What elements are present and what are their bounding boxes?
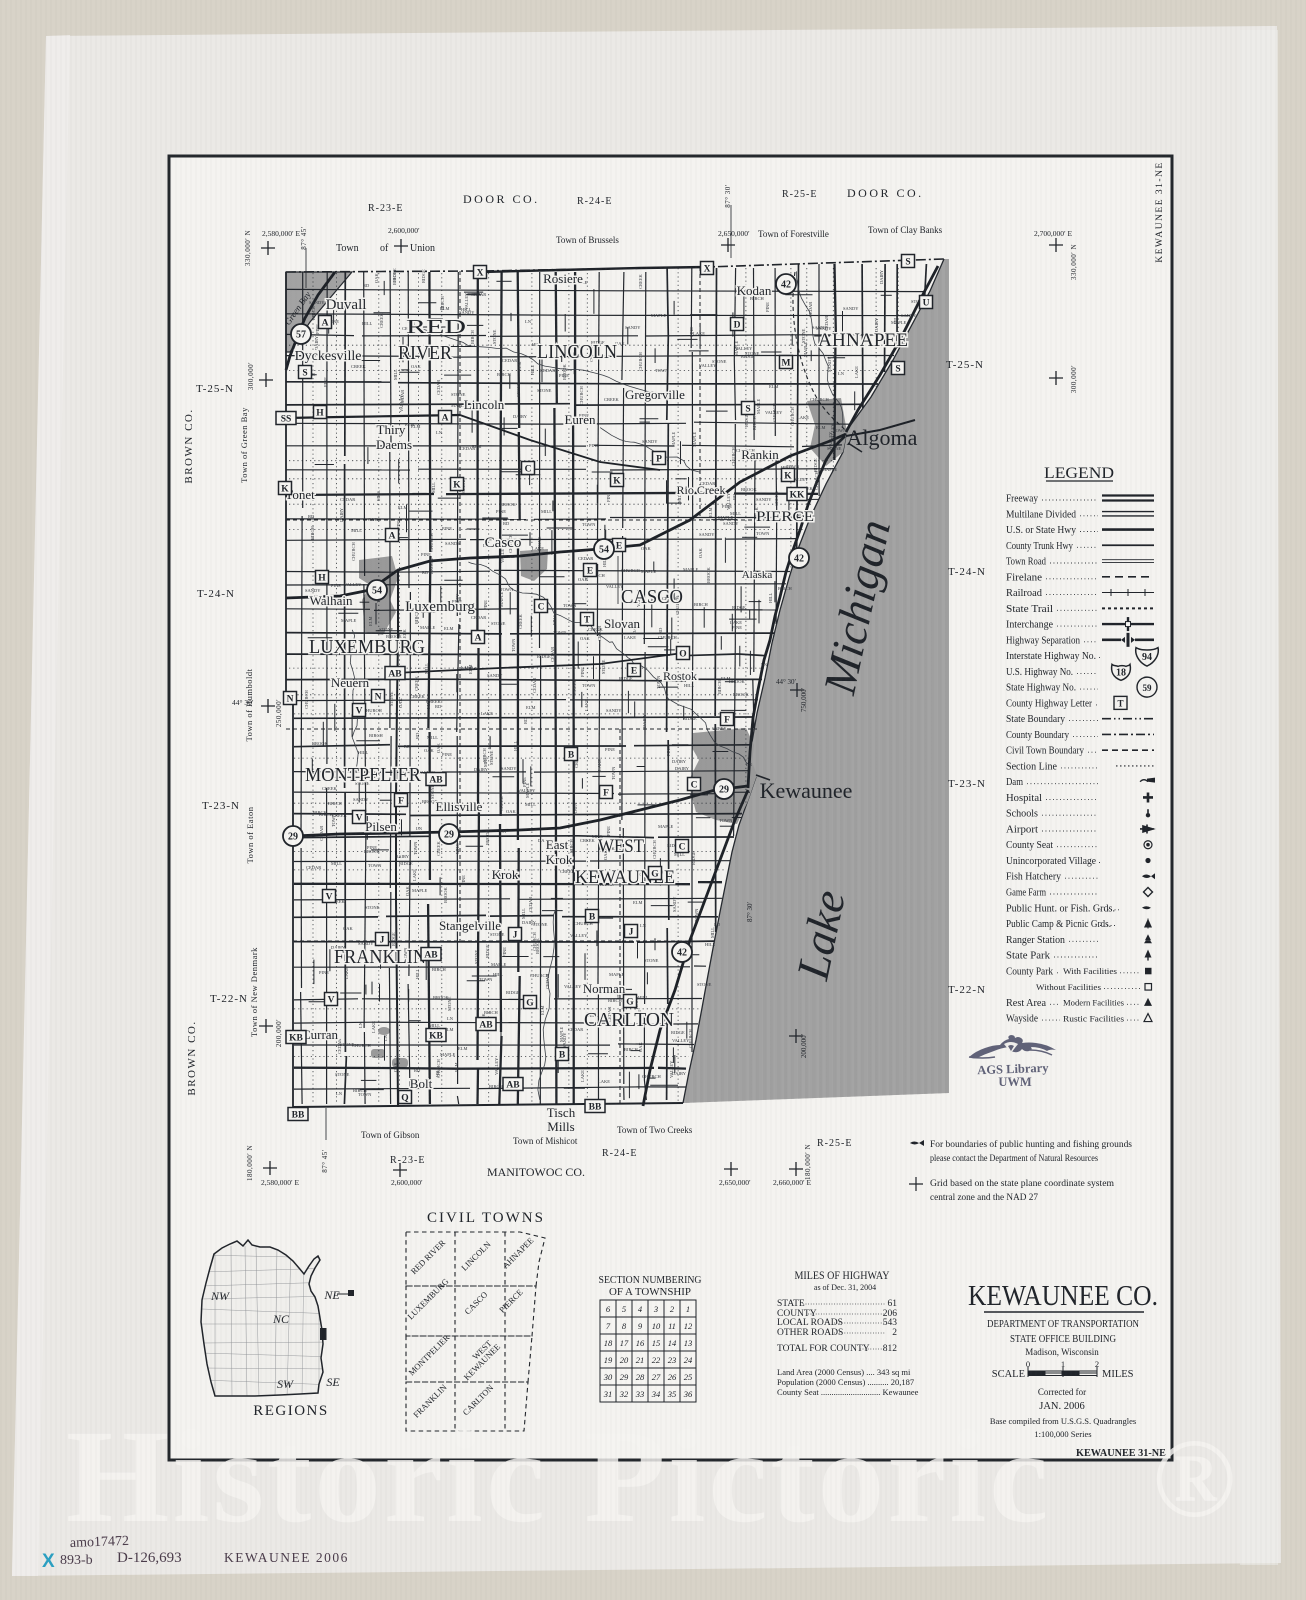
svg-text:DAIRY: DAIRY bbox=[675, 766, 690, 771]
svg-text:BROOK: BROOK bbox=[741, 487, 758, 492]
svg-text:11: 11 bbox=[668, 1321, 676, 1331]
svg-text:Section Line: Section Line bbox=[1006, 761, 1057, 772]
svg-text:VALLEY: VALLEY bbox=[765, 410, 783, 415]
svg-text:M: M bbox=[782, 358, 791, 368]
svg-text:CREEK: CREEK bbox=[518, 613, 523, 629]
svg-text:54: 54 bbox=[372, 586, 382, 597]
svg-text:Town Road: Town Road bbox=[1006, 557, 1047, 568]
svg-text:14: 14 bbox=[668, 1338, 677, 1348]
svg-text:County Boundary: County Boundary bbox=[1006, 730, 1070, 741]
svg-text:CHURCH: CHURCH bbox=[436, 1058, 441, 1078]
svg-text:ELM: ELM bbox=[398, 505, 408, 510]
svg-text:F: F bbox=[398, 796, 404, 806]
svg-text:TOWN: TOWN bbox=[694, 908, 699, 922]
svg-text:OAK: OAK bbox=[405, 886, 410, 896]
svg-text:Bolt: Bolt bbox=[410, 1076, 433, 1091]
svg-text:28: 28 bbox=[636, 1372, 645, 1382]
svg-text:DAIRY: DAIRY bbox=[513, 414, 528, 419]
svg-text:DAIRY: DAIRY bbox=[474, 767, 489, 772]
svg-text:OAK: OAK bbox=[698, 548, 703, 558]
svg-text:TOWN: TOWN bbox=[833, 428, 847, 433]
svg-text:State Park: State Park bbox=[1006, 951, 1051, 962]
svg-text:CEDAR: CEDAR bbox=[400, 390, 405, 405]
svg-text:Luxemburg: Luxemburg bbox=[405, 599, 475, 615]
svg-text:Duvall: Duvall bbox=[326, 297, 367, 313]
svg-text:ELM: ELM bbox=[769, 384, 779, 389]
svg-text:Grid based on the state p: Grid based on the state plane coordinate… bbox=[930, 1179, 1115, 1189]
svg-text:H: H bbox=[318, 573, 326, 583]
svg-text:LAKE: LAKE bbox=[854, 366, 859, 378]
svg-text:Krok: Krok bbox=[492, 867, 519, 882]
svg-text:Modern Facilities: Modern Facilities bbox=[1063, 999, 1124, 1008]
svg-text:E: E bbox=[616, 541, 622, 551]
svg-text:MAPLE: MAPLE bbox=[491, 962, 507, 967]
svg-text:KEWAUNEE 2006: KEWAUNEE 2006 bbox=[224, 1550, 349, 1565]
svg-text:20: 20 bbox=[620, 1355, 629, 1365]
svg-text:812: 812 bbox=[883, 1344, 898, 1354]
svg-text:LN: LN bbox=[336, 1091, 343, 1096]
svg-text:KK: KK bbox=[790, 490, 805, 500]
svg-text:Town of Brussels: Town of Brussels bbox=[556, 235, 619, 245]
svg-text:OAK: OAK bbox=[374, 273, 379, 283]
svg-text:R-25-E: R-25-E bbox=[782, 189, 817, 200]
svg-text:CREEK: CREEK bbox=[560, 869, 576, 874]
svg-text:PINE: PINE bbox=[396, 519, 401, 529]
svg-text:SE: SE bbox=[326, 1375, 340, 1389]
svg-text:S: S bbox=[905, 257, 910, 267]
svg-text:State Highway No.: State Highway No. bbox=[1006, 683, 1076, 694]
svg-text:27: 27 bbox=[652, 1372, 661, 1382]
svg-text:X: X bbox=[477, 268, 484, 278]
svg-text:ELM: ELM bbox=[517, 362, 522, 372]
svg-text:BROOK: BROOK bbox=[706, 566, 711, 583]
svg-text:MAPLE: MAPLE bbox=[756, 398, 761, 414]
svg-text:BROOK: BROOK bbox=[535, 937, 540, 954]
svg-text:87° 45′: 87° 45′ bbox=[321, 1149, 329, 1173]
svg-text:STONE: STONE bbox=[697, 982, 712, 987]
svg-text:Historic Pictoric: Historic Pictoric bbox=[66, 1402, 1051, 1550]
svg-text:DAIRY: DAIRY bbox=[672, 1071, 687, 1076]
svg-text:LN: LN bbox=[436, 430, 443, 435]
svg-text:State Boundary: State Boundary bbox=[1006, 714, 1066, 725]
svg-text:T: T bbox=[1117, 698, 1123, 708]
svg-text:MAPLE: MAPLE bbox=[641, 569, 657, 574]
svg-text:87° 30′: 87° 30′ bbox=[724, 184, 732, 208]
svg-text:Firelane: Firelane bbox=[1006, 572, 1042, 583]
svg-text:Slovan: Slovan bbox=[604, 616, 641, 631]
svg-text:CEDAR: CEDAR bbox=[578, 556, 593, 561]
svg-text:STONE: STONE bbox=[335, 1072, 350, 1077]
svg-text:29: 29 bbox=[719, 785, 729, 796]
svg-text:DOOR CO.: DOOR CO. bbox=[847, 186, 924, 200]
svg-text:C: C bbox=[525, 464, 532, 474]
svg-text:MILES OF HIGHWAY: MILES OF HIGHWAY bbox=[795, 1270, 891, 1282]
svg-text:RD: RD bbox=[732, 493, 737, 500]
svg-text:KB: KB bbox=[429, 1031, 443, 1041]
svg-text:MAPLE: MAPLE bbox=[671, 431, 676, 447]
svg-text:CHURCH: CHURCH bbox=[429, 532, 434, 552]
svg-text:MILL: MILL bbox=[552, 614, 557, 625]
svg-text:DOOR CO.: DOOR CO. bbox=[463, 192, 540, 206]
svg-text:180,000′ N: 180,000′ N bbox=[804, 1144, 812, 1180]
svg-text:PINE: PINE bbox=[605, 747, 615, 752]
svg-text:TOWN: TOWN bbox=[413, 841, 418, 855]
svg-text:Thiry: Thiry bbox=[377, 422, 406, 437]
svg-text:CEDAR: CEDAR bbox=[568, 1027, 583, 1032]
svg-text:BROOK: BROOK bbox=[729, 679, 746, 684]
svg-text:BIRCH: BIRCH bbox=[310, 525, 315, 540]
svg-text:NE: NE bbox=[323, 1288, 340, 1302]
svg-text:B: B bbox=[589, 912, 596, 922]
svg-text:For boundaries of public h: For boundaries of public hunting and fis… bbox=[930, 1139, 1132, 1150]
svg-text:2: 2 bbox=[892, 1328, 897, 1338]
svg-text:15: 15 bbox=[652, 1338, 661, 1348]
svg-text:LAKE: LAKE bbox=[797, 415, 809, 420]
svg-text:STONE: STONE bbox=[492, 329, 497, 344]
svg-text:OAK: OAK bbox=[580, 636, 590, 641]
svg-text:PINE: PINE bbox=[589, 443, 599, 448]
svg-text:K: K bbox=[281, 484, 289, 494]
svg-text:BROOK: BROOK bbox=[429, 557, 434, 574]
svg-text:12: 12 bbox=[684, 1321, 693, 1331]
svg-text:LAKE: LAKE bbox=[461, 665, 473, 670]
svg-text:X: X bbox=[42, 1551, 55, 1572]
svg-text:BB: BB bbox=[292, 1110, 305, 1120]
svg-text:Town of Clay Banks: Town of Clay Banks bbox=[868, 225, 943, 235]
svg-text:CREEK: CREEK bbox=[414, 675, 419, 691]
svg-text:Interstate Highway No.: Interstate Highway No. bbox=[1006, 651, 1096, 662]
svg-text:5: 5 bbox=[622, 1304, 626, 1314]
svg-text:NW: NW bbox=[210, 1289, 230, 1303]
svg-text:BIRCH: BIRCH bbox=[569, 838, 574, 853]
svg-text:CEDAR: CEDAR bbox=[532, 678, 537, 693]
svg-text:Tisch: Tisch bbox=[547, 1105, 576, 1120]
svg-text:ELM: ELM bbox=[816, 425, 826, 430]
svg-text:State Trail: State Trail bbox=[1006, 604, 1053, 615]
svg-text:LN: LN bbox=[416, 826, 423, 831]
svg-text:STONE: STONE bbox=[491, 621, 506, 626]
svg-text:TOWN: TOWN bbox=[611, 766, 616, 780]
svg-text:STONE: STONE bbox=[379, 627, 394, 632]
svg-text:N: N bbox=[375, 692, 382, 702]
svg-text:LN: LN bbox=[500, 829, 507, 834]
svg-text:Casco: Casco bbox=[485, 535, 522, 551]
svg-text:U: U bbox=[923, 298, 930, 308]
svg-text:23: 23 bbox=[668, 1355, 677, 1365]
svg-text:LN: LN bbox=[838, 371, 845, 376]
svg-text:BROWN CO.: BROWN CO. bbox=[186, 1020, 198, 1095]
svg-text:PINE: PINE bbox=[442, 752, 452, 757]
svg-text:RIDGE: RIDGE bbox=[485, 944, 490, 958]
svg-text:CHURCH: CHURCH bbox=[579, 385, 584, 405]
svg-text:LN: LN bbox=[640, 923, 647, 928]
svg-text:STONE: STONE bbox=[489, 750, 494, 765]
svg-text:SANDY: SANDY bbox=[843, 306, 859, 311]
svg-text:LN: LN bbox=[525, 319, 532, 324]
svg-text:A: A bbox=[475, 633, 482, 643]
svg-text:LN: LN bbox=[358, 1021, 363, 1028]
svg-text:ELM: ELM bbox=[526, 705, 536, 710]
svg-text:SANDY: SANDY bbox=[827, 356, 832, 372]
svg-text:E: E bbox=[587, 566, 593, 576]
svg-text:Unincorporated Village: Unincorporated Village bbox=[1006, 856, 1096, 867]
svg-text:ELM: ELM bbox=[472, 444, 482, 449]
svg-text:STONE: STONE bbox=[601, 659, 606, 674]
svg-text:CEDAR: CEDAR bbox=[545, 974, 550, 989]
svg-text:Without Facilities: Without Facilities bbox=[1036, 983, 1101, 992]
svg-text:Wayside: Wayside bbox=[1006, 1014, 1038, 1025]
svg-text:S: S bbox=[745, 404, 750, 414]
svg-text:PINE: PINE bbox=[367, 845, 377, 850]
svg-text:BROOK: BROOK bbox=[312, 741, 329, 746]
svg-text:F: F bbox=[603, 788, 609, 798]
svg-text:Rio Creek: Rio Creek bbox=[677, 483, 726, 497]
svg-text:T-23-N: T-23-N bbox=[948, 778, 986, 790]
svg-text:ELM: ELM bbox=[368, 617, 373, 627]
svg-text:SW: SW bbox=[277, 1377, 294, 1391]
svg-text:TOWN: TOWN bbox=[553, 630, 567, 635]
svg-text:PINE: PINE bbox=[666, 746, 671, 756]
svg-text:CIVIL TOWNS: CIVIL TOWNS bbox=[427, 1210, 545, 1226]
svg-text:R-25-E: R-25-E bbox=[817, 1138, 852, 1149]
svg-text:SANDY: SANDY bbox=[642, 439, 658, 444]
svg-text:LN: LN bbox=[761, 662, 768, 667]
svg-text:A: A bbox=[442, 413, 449, 423]
svg-text:VALLEY: VALLEY bbox=[699, 363, 717, 368]
svg-text:Ranger Station: Ranger Station bbox=[1006, 935, 1066, 946]
svg-text:DAIRY: DAIRY bbox=[395, 854, 410, 859]
svg-text:Rest Area: Rest Area bbox=[1006, 998, 1046, 1009]
svg-text:29: 29 bbox=[288, 832, 298, 843]
svg-text:TOWN: TOWN bbox=[582, 683, 596, 688]
svg-text:SANDY: SANDY bbox=[353, 797, 369, 802]
svg-text:East: East bbox=[546, 837, 569, 852]
svg-text:19: 19 bbox=[604, 1355, 613, 1365]
svg-text:RIDGE: RIDGE bbox=[391, 932, 396, 946]
svg-text:CREEK: CREEK bbox=[379, 312, 384, 328]
svg-text:BIRCH: BIRCH bbox=[369, 733, 384, 738]
svg-text:CHURCH: CHURCH bbox=[621, 568, 641, 573]
svg-text:S: S bbox=[302, 368, 307, 378]
svg-text:STONE: STONE bbox=[447, 996, 452, 1011]
svg-text:MAPLE: MAPLE bbox=[734, 340, 739, 356]
svg-text:893-b: 893-b bbox=[60, 1553, 93, 1568]
svg-text:MONTPELIER: MONTPELIER bbox=[305, 764, 422, 786]
svg-text:T-24-N: T-24-N bbox=[197, 588, 235, 600]
svg-text:G: G bbox=[526, 998, 534, 1008]
svg-text:STONE: STONE bbox=[801, 328, 806, 343]
svg-text:DAIRY: DAIRY bbox=[879, 269, 884, 284]
svg-text:LAKE: LAKE bbox=[597, 759, 602, 771]
svg-text:SANDY: SANDY bbox=[309, 300, 325, 305]
svg-text:PIERCE: PIERCE bbox=[756, 509, 814, 525]
svg-text:Lincoln: Lincoln bbox=[464, 397, 505, 412]
svg-text:ELM: ELM bbox=[708, 508, 713, 518]
svg-text:MILES: MILES bbox=[1102, 1369, 1134, 1380]
svg-text:STONE: STONE bbox=[474, 949, 479, 964]
svg-text:CHURCH: CHURCH bbox=[688, 1028, 693, 1048]
svg-text:CHURCH: CHURCH bbox=[814, 470, 819, 490]
svg-text:Rustic Facilities: Rustic Facilities bbox=[1063, 1014, 1124, 1023]
svg-text:HILL: HILL bbox=[362, 321, 372, 326]
svg-text:RD: RD bbox=[363, 283, 370, 288]
svg-text:PINE: PINE bbox=[722, 504, 732, 509]
svg-text:Algoma: Algoma bbox=[847, 425, 918, 450]
svg-text:D: D bbox=[734, 320, 741, 330]
svg-text:RD: RD bbox=[422, 570, 429, 575]
svg-text:CEDAR: CEDAR bbox=[340, 497, 355, 502]
svg-text:Game Farm: Game Farm bbox=[1006, 888, 1046, 899]
svg-text:Kewaunee: Kewaunee bbox=[760, 778, 853, 803]
svg-text:BIRCH: BIRCH bbox=[778, 586, 793, 591]
svg-text:CHURCH: CHURCH bbox=[642, 1074, 662, 1079]
svg-text:CHURCH: CHURCH bbox=[658, 635, 678, 640]
svg-text:SANDY: SANDY bbox=[723, 521, 739, 526]
svg-text:U.S. or State Hwy: U.S. or State Hwy bbox=[1006, 525, 1077, 536]
svg-text:BROWN CO.: BROWN CO. bbox=[183, 408, 195, 483]
svg-text:MAPLE: MAPLE bbox=[341, 618, 357, 623]
svg-text:10: 10 bbox=[652, 1321, 661, 1331]
svg-text:LINCOLN: LINCOLN bbox=[537, 341, 617, 363]
svg-text:R-23-E: R-23-E bbox=[390, 1155, 425, 1166]
svg-text:RD: RD bbox=[523, 717, 528, 724]
svg-text:PINE: PINE bbox=[606, 826, 611, 836]
svg-text:OAK: OAK bbox=[424, 748, 434, 753]
svg-text:Town of Green Bay: Town of Green Bay bbox=[239, 407, 249, 483]
svg-text:HILL: HILL bbox=[513, 741, 518, 751]
svg-text:18: 18 bbox=[604, 1338, 613, 1348]
svg-text:BROOK: BROOK bbox=[733, 692, 750, 697]
svg-text:3: 3 bbox=[653, 1304, 658, 1314]
svg-text:RIDGE: RIDGE bbox=[691, 851, 696, 865]
svg-text:STONE: STONE bbox=[389, 691, 394, 706]
svg-text:H: H bbox=[316, 408, 324, 418]
svg-text:ELM: ELM bbox=[458, 1046, 468, 1051]
svg-text:County Highway Letter: County Highway Letter bbox=[1006, 698, 1092, 709]
svg-text:OAK: OAK bbox=[343, 926, 353, 931]
svg-text:KEWAUNEE CO.: KEWAUNEE CO. bbox=[968, 1281, 1158, 1312]
svg-text:MILL: MILL bbox=[525, 802, 536, 807]
svg-text:24: 24 bbox=[684, 1355, 693, 1365]
svg-text:Krok: Krok bbox=[546, 852, 573, 867]
svg-text:PINE: PINE bbox=[496, 509, 506, 514]
svg-text:OAK: OAK bbox=[393, 1062, 398, 1072]
svg-text:PINE: PINE bbox=[732, 625, 742, 630]
svg-text:MAPLE: MAPLE bbox=[420, 625, 436, 630]
svg-text:C: C bbox=[691, 780, 698, 790]
svg-text:LAKE: LAKE bbox=[371, 1021, 376, 1033]
svg-text:Rostok: Rostok bbox=[663, 669, 697, 683]
svg-text:SANDY: SANDY bbox=[501, 766, 517, 771]
svg-text:R-24-E: R-24-E bbox=[577, 196, 612, 207]
svg-text:LAKE: LAKE bbox=[624, 635, 636, 640]
svg-text:HILL: HILL bbox=[638, 995, 648, 1000]
svg-text:2,650,000′: 2,650,000′ bbox=[718, 229, 750, 238]
svg-text:SANDY: SANDY bbox=[672, 896, 677, 912]
svg-text:RD: RD bbox=[415, 732, 420, 739]
svg-text:LEGEND: LEGEND bbox=[1044, 465, 1114, 482]
svg-text:TOWN: TOWN bbox=[368, 863, 382, 868]
svg-text:Town of Forestville: Town of Forestville bbox=[758, 229, 829, 239]
svg-text:RD: RD bbox=[509, 554, 516, 559]
svg-text:330,000′ N: 330,000′ N bbox=[1070, 244, 1078, 280]
svg-text:SANDY: SANDY bbox=[901, 313, 917, 318]
svg-text:18: 18 bbox=[1116, 667, 1126, 678]
svg-text:Land Area (2000 Census) .... 3: Land Area (2000 Census) .... 343 sq mi bbox=[777, 1367, 911, 1377]
svg-text:County Seat: County Seat bbox=[1006, 840, 1053, 851]
svg-text:36: 36 bbox=[683, 1389, 693, 1399]
svg-text:Q: Q bbox=[401, 1093, 408, 1103]
svg-text:44° 30′: 44° 30′ bbox=[232, 698, 254, 707]
svg-text:Airport: Airport bbox=[1006, 825, 1038, 836]
svg-text:330,000′ N: 330,000′ N bbox=[244, 230, 252, 266]
svg-text:31: 31 bbox=[603, 1389, 613, 1399]
svg-text:AB: AB bbox=[429, 775, 443, 785]
svg-text:O: O bbox=[679, 649, 686, 659]
svg-text:BIRCH: BIRCH bbox=[484, 1010, 499, 1015]
svg-text:TOWN: TOWN bbox=[479, 977, 493, 982]
svg-text:33: 33 bbox=[635, 1389, 645, 1399]
svg-text:J: J bbox=[629, 927, 634, 937]
svg-text:ELM: ELM bbox=[540, 1006, 545, 1016]
svg-text:Union: Union bbox=[410, 243, 435, 254]
svg-text:RD: RD bbox=[714, 922, 721, 927]
svg-text:STONE: STONE bbox=[537, 536, 542, 551]
svg-text:MILL: MILL bbox=[376, 490, 381, 501]
svg-text:ELM: ELM bbox=[454, 1063, 459, 1073]
svg-text:MILL: MILL bbox=[455, 843, 460, 854]
svg-text:please contact the Departme: please contact the Department of Natural… bbox=[930, 1153, 1098, 1164]
svg-text:BB: BB bbox=[589, 1102, 602, 1112]
svg-text:BIRCH: BIRCH bbox=[432, 967, 447, 972]
svg-text:ELM: ELM bbox=[633, 900, 643, 905]
svg-text:MAPLE: MAPLE bbox=[658, 824, 674, 829]
svg-text:SCALE: SCALE bbox=[992, 1369, 1025, 1380]
svg-text:87° 30′: 87° 30′ bbox=[746, 901, 754, 922]
svg-text:Town of Eaton: Town of Eaton bbox=[245, 806, 255, 863]
svg-text:Curran: Curran bbox=[302, 1027, 339, 1042]
svg-text:Town of Gibson: Town of Gibson bbox=[361, 1130, 420, 1140]
svg-text:STONE: STONE bbox=[533, 922, 548, 927]
svg-text:BROOK: BROOK bbox=[500, 502, 517, 507]
svg-text:VALLEY: VALLEY bbox=[344, 582, 362, 587]
svg-text:CHURCH: CHURCH bbox=[304, 689, 309, 709]
svg-text:T-22-N: T-22-N bbox=[948, 984, 986, 996]
svg-text:MAPLE: MAPLE bbox=[891, 320, 907, 325]
svg-text:HILL: HILL bbox=[530, 365, 535, 375]
svg-text:Town of Mishicot: Town of Mishicot bbox=[513, 1136, 578, 1146]
svg-text:®: ® bbox=[1152, 1417, 1236, 1541]
svg-text:VALLEY: VALLEY bbox=[494, 1057, 499, 1075]
svg-text:MAPLE: MAPLE bbox=[525, 782, 530, 798]
svg-text:Town: Town bbox=[336, 243, 359, 254]
svg-text:MAPLE: MAPLE bbox=[692, 431, 697, 447]
svg-text:SANDY: SANDY bbox=[606, 708, 622, 713]
svg-text:STATE: STATE bbox=[777, 1299, 805, 1309]
svg-text:29: 29 bbox=[444, 830, 454, 841]
svg-text:D-126,693: D-126,693 bbox=[117, 1550, 182, 1566]
svg-text:MAPLE: MAPLE bbox=[651, 313, 667, 318]
svg-text:SANDY: SANDY bbox=[699, 532, 715, 537]
svg-text:amo17472: amo17472 bbox=[70, 1534, 130, 1551]
svg-text:CREEK: CREEK bbox=[638, 273, 643, 289]
svg-text:N: N bbox=[287, 694, 294, 704]
svg-text:County Seat ..................: County Seat ............................… bbox=[777, 1387, 919, 1397]
svg-text:2,600,000′: 2,600,000′ bbox=[391, 1178, 423, 1187]
svg-text:BIRCH: BIRCH bbox=[624, 1047, 639, 1052]
svg-text:Schools: Schools bbox=[1006, 809, 1038, 820]
svg-text:Interchange: Interchange bbox=[1006, 620, 1053, 631]
